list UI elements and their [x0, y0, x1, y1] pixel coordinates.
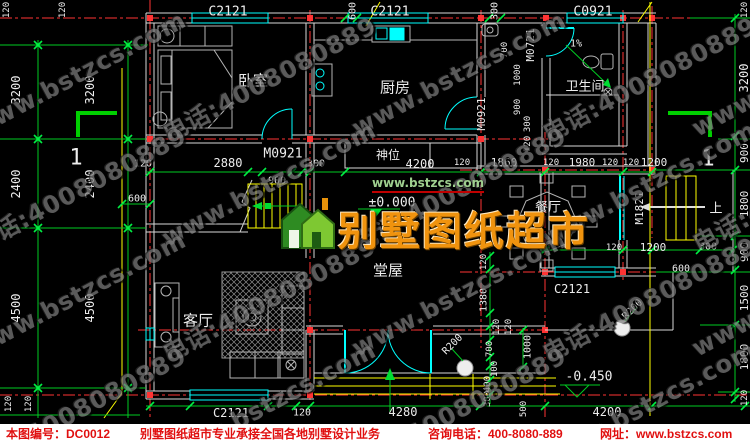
plan-label: 厨房 — [380, 78, 410, 96]
plan-label: 1980 — [569, 156, 596, 169]
plan-label: 120 — [58, 2, 68, 18]
plan-label: 2400 — [83, 170, 97, 199]
plan-label: 1% — [570, 39, 582, 50]
plan-label: 1000 — [513, 64, 523, 86]
plan-label: 120 — [623, 158, 639, 168]
plan-label: 1200 — [640, 241, 667, 254]
plan-label: 700 — [500, 42, 510, 58]
plan-label: 1500 — [738, 285, 750, 312]
plan-label: 1800 — [738, 191, 750, 218]
plan-label: 300 — [490, 2, 501, 20]
plan-label: 400 — [483, 376, 493, 392]
plan-label: 120 — [606, 243, 622, 253]
plan-label: M0921 — [475, 97, 488, 130]
plan-label: 600 — [128, 194, 146, 205]
plan-label: 2880 — [214, 156, 243, 170]
plan-label: 900 — [268, 176, 286, 187]
plan-label: 100 — [490, 361, 500, 377]
plan-label: 3200 — [83, 76, 97, 105]
plan-label: 2400 — [9, 170, 23, 199]
plan-label: 3200 — [737, 64, 750, 93]
sheet-number: 本图编号：DC0012 — [6, 425, 110, 442]
plan-label: ±0.000 — [369, 196, 416, 211]
plan-label: 1860 — [491, 156, 518, 169]
plan-label: 300 — [483, 391, 493, 407]
plan-label: 120 — [492, 319, 502, 335]
plan-label: 300 — [699, 242, 717, 253]
plan-label: 120 — [602, 158, 618, 168]
plan-label: 120 — [740, 390, 750, 406]
section-brackets-green — [78, 113, 710, 137]
plan-label: R200 — [440, 332, 465, 357]
plan-label: -0.450 — [566, 370, 613, 385]
plan-label: 300 — [523, 116, 533, 132]
plan-label: M0921 — [263, 147, 302, 162]
plan-label: 500 — [519, 401, 529, 417]
plan-label: 4280 — [389, 405, 418, 419]
plan-label: 卫生间 — [565, 80, 604, 95]
plan-label: 120 — [523, 136, 533, 152]
plan-label: C2121 — [554, 282, 590, 296]
plan-label: 1380 — [479, 288, 490, 312]
plan-label: 900 — [738, 143, 750, 163]
plan-label: 1800 — [738, 344, 750, 371]
furniture — [153, 24, 705, 378]
plan-label: 120 — [543, 158, 559, 168]
plan-label: 120 — [2, 2, 12, 18]
plan-label: 120 — [24, 396, 34, 412]
plan-label: 900 — [513, 99, 523, 115]
footer-site: 网址：www.bstzcs.com — [600, 425, 732, 442]
plan-label: 600 — [348, 2, 359, 20]
plan-label: 120 — [134, 159, 152, 170]
plan-label: 上 — [709, 202, 722, 217]
plan-label: 客厅 — [183, 311, 213, 329]
plan-label: 900 — [738, 242, 750, 262]
plan-label: 1000 — [523, 335, 534, 359]
plan-label: 4200 — [593, 405, 622, 419]
plan-label: 120 — [454, 158, 470, 168]
plan-label: 1200 — [641, 156, 668, 169]
plan-label: 300 — [307, 159, 325, 170]
footer-bar: 本图编号：DC0012 别墅图纸超市专业承接全国各地别墅设计业务 咨询电话：40… — [0, 424, 750, 442]
plan-label: 1 — [701, 147, 714, 172]
plan-label: M1821 — [633, 191, 646, 224]
plan-label: 3200 — [9, 76, 23, 105]
plan-label: 600 — [672, 264, 690, 275]
plan-label: 120 — [740, 2, 750, 18]
plan-label: 1 — [69, 146, 82, 171]
cad-floorplan-viewer: C2121600C2121300C09211201201203200320024… — [0, 0, 750, 442]
plan-label: 120 — [504, 319, 514, 335]
plan-label: 堂屋 — [373, 261, 403, 279]
plan-label: C0921 — [573, 5, 612, 20]
plan-label: 餐厅 — [535, 200, 561, 216]
plan-label: C2121 — [370, 5, 409, 20]
plan-label: C2121 — [208, 5, 247, 20]
plan-label: 卧室 — [238, 71, 268, 89]
plan-label: 4500 — [83, 294, 97, 323]
plan-label: M0721 — [524, 28, 537, 61]
plan-label: 120 — [479, 254, 489, 270]
plan-label: C2121 — [213, 406, 249, 420]
footer-slogan: 别墅图纸超市专业承接全国各地别墅设计业务 — [140, 425, 380, 442]
plan-label: 120 — [293, 408, 311, 419]
plan-label: R200 — [620, 297, 645, 322]
floor-plan-canvas: C2121600C2121300C09211201201203200320024… — [0, 0, 750, 424]
plan-label: 4200 — [406, 157, 435, 171]
plan-label: 神位 — [376, 147, 400, 162]
plan-label: 700 — [485, 341, 495, 357]
plan-label: 4500 — [9, 294, 23, 323]
plan-label: 120 — [4, 396, 14, 412]
footer-phone: 咨询电话：400-8080-889 — [428, 425, 563, 442]
